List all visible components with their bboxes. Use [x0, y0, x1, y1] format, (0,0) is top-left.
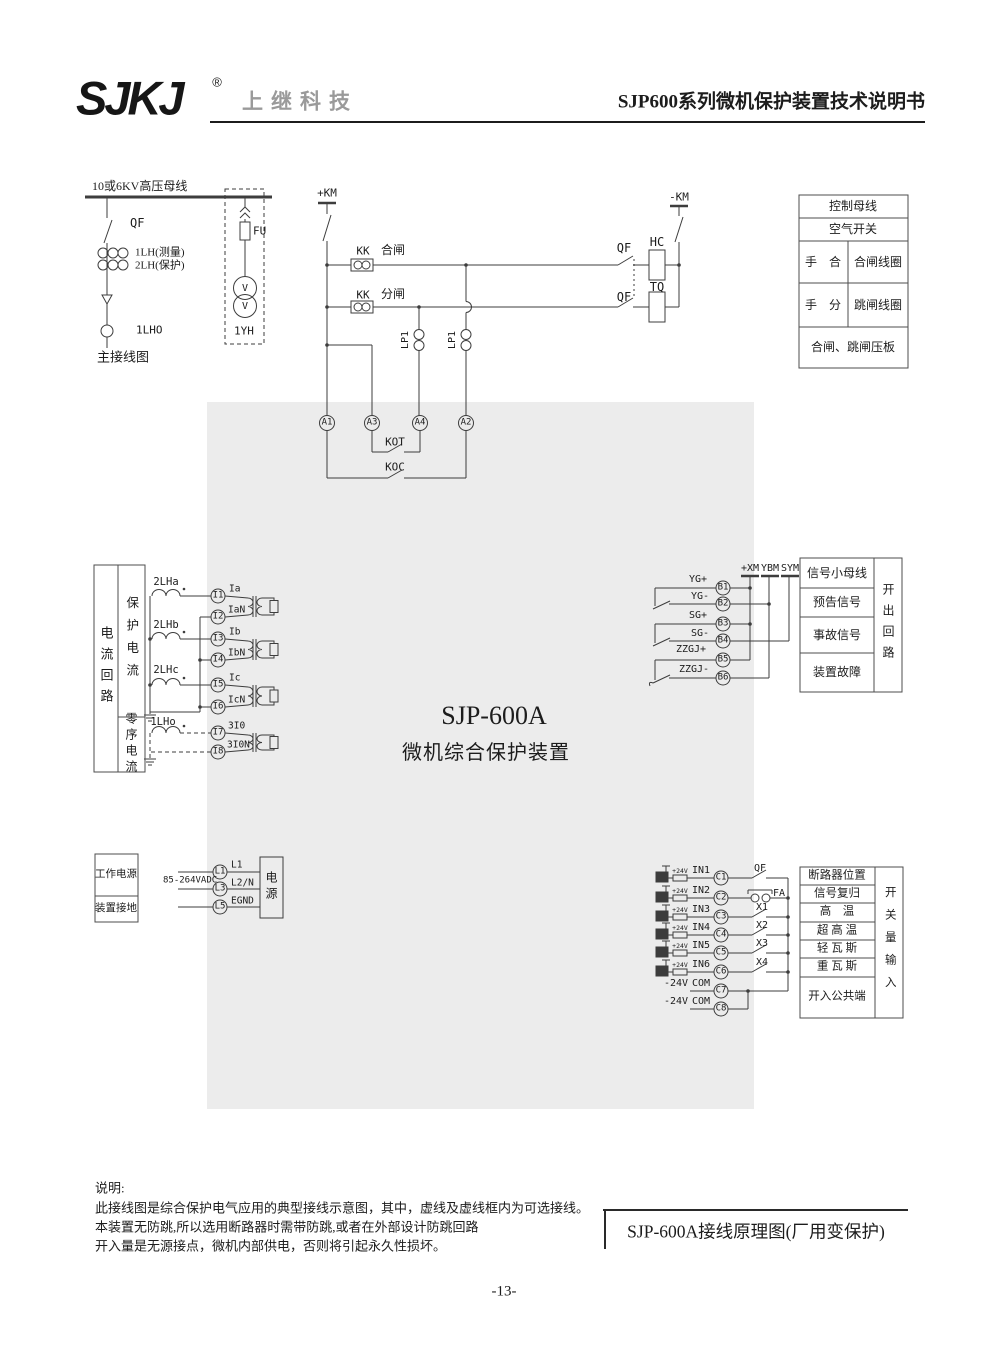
junction-dots: [148, 588, 202, 728]
in-table-row-light-gas: 轻 瓦 斯: [817, 943, 857, 955]
bus-sym-label: SYM: [781, 564, 799, 574]
contact-x2-label: X2: [756, 921, 768, 931]
r24v-label-1: +24V: [672, 868, 688, 875]
signal-l2n: L2/N: [231, 878, 254, 888]
terminal-c1: C1: [716, 874, 727, 883]
terminal-c7: C7: [716, 987, 727, 996]
terminal-b4: B4: [718, 637, 729, 646]
r24v-label-4: +24V: [672, 925, 688, 932]
trip-coil-label: TQ: [650, 281, 664, 293]
device-model: SJP-600A: [441, 703, 546, 729]
terminal-l5: L5: [215, 903, 226, 912]
signal-ibn: IbN: [228, 648, 245, 658]
current-group-label: 电流回路: [100, 626, 113, 710]
ct-b-label: 2LHb: [153, 620, 178, 631]
signal-in4: IN4: [692, 923, 710, 933]
contact-x3-label: X3: [756, 939, 768, 949]
breaker-label: QF: [130, 217, 144, 229]
signal-ia: Ia: [229, 584, 240, 594]
terminal-a2: A2: [461, 419, 472, 428]
terminal-i8: I8: [213, 748, 224, 757]
sig-table-row-fault: 事故信号: [813, 629, 861, 641]
in-table-row-over-temp: 超 高 温: [817, 925, 857, 937]
supply-voltage-label: 85-264VADC: [163, 877, 217, 886]
terminal-i4: I4: [213, 656, 224, 665]
lp1-close-plate-label: LP1: [448, 331, 458, 349]
signal-ic: Ic: [229, 673, 240, 683]
kk-close-label: KK: [356, 246, 369, 257]
terminal-i7: I7: [213, 729, 224, 738]
brand-logo: SJKJ: [76, 75, 182, 122]
r24v-label-3: +24V: [672, 907, 688, 914]
terminal-b6: B6: [718, 674, 729, 683]
close-coil-label: HC: [650, 236, 664, 248]
primary-caption: 主接线图: [97, 351, 149, 364]
manual-page: SJKJ ® 上继科技 SJP600系列微机保护装置技术说明书 10或6KV高压…: [0, 0, 1000, 1357]
km-positive-label: +KM: [317, 188, 337, 199]
vt-v2-label: V: [242, 302, 248, 312]
in-table-row-signal-reset: 信号复归: [814, 888, 860, 900]
r24v-label-6: +24V: [672, 962, 688, 969]
terminal-b5: B5: [718, 656, 729, 665]
ctrl-table-close-coil: 合闸线圈: [854, 256, 902, 268]
terminal-c8: C8: [716, 1005, 727, 1014]
sig-table-col-output: 开出回路: [882, 583, 894, 667]
terminal-c3: C3: [716, 913, 727, 922]
contact-qf-label: QF: [754, 864, 766, 874]
r24v-label-5: +24V: [672, 943, 688, 950]
kot-contact-label: KOT: [385, 437, 405, 448]
notes-title: 说明:: [95, 1182, 125, 1195]
drawing-title: SJP-600A接线原理图(厂用变保护): [627, 1223, 885, 1241]
fuse-label: FU: [253, 226, 266, 237]
bus-ybm-label: YBM: [761, 564, 779, 574]
terminal-b1: B1: [718, 584, 729, 593]
zero-seq-current-label: 零序电流: [125, 712, 137, 776]
terminal-i5: I5: [213, 681, 224, 690]
signal-in2: IN2: [692, 886, 710, 896]
signal-in1: IN1: [692, 866, 710, 876]
signal-com-1: COM: [692, 979, 710, 989]
in-table-row-high-temp: 高 温: [820, 906, 855, 918]
signal-in6: IN6: [692, 960, 710, 970]
signal-zzgj-pos: ZZGJ+: [676, 645, 706, 655]
psu-box-label: 电源: [265, 871, 277, 903]
registered-mark-icon: ®: [212, 76, 222, 89]
neg24v-label-2: -24V: [664, 997, 688, 1007]
notes-line-3: 开入量是无源接点，微机内部供电，否则将引起永久性损坏。: [95, 1240, 446, 1253]
company-name: 上继科技: [242, 92, 358, 113]
terminal-i6: I6: [213, 703, 224, 712]
signal-in3: IN3: [692, 905, 710, 915]
signal-ian: IaN: [228, 605, 245, 615]
ct-a-label: 2LHa: [153, 577, 178, 588]
sig-table-row-device-fail: 装置故障: [813, 666, 861, 678]
bus-xm-label: +XM: [741, 564, 759, 574]
qf-aux2-label: QF: [617, 291, 631, 303]
sig-table-row-bus: 信号小母线: [807, 567, 867, 579]
protect-current-label: 保护电流: [125, 596, 138, 686]
r24v-label-2: +24V: [672, 888, 688, 895]
ctrl-table-plates: 合闸、跳闸压板: [811, 341, 895, 353]
vt-v1-label: V: [242, 284, 248, 294]
hv-bus-label: 10或6KV高压母线: [92, 180, 187, 192]
terminal-l3: L3: [215, 885, 226, 894]
notes-line-1: 此接线图是综合保护电气应用的典型接线示意图，其中，虚线及虚线框内为可选接线。: [95, 1202, 589, 1215]
zero-ct-label: 1LHO: [136, 325, 163, 336]
signal-yg-neg: YG-: [691, 592, 709, 602]
in-table-col-binary-input: 开关量输入: [883, 886, 895, 999]
document-title: SJP600系列微机保护装置技术说明书: [618, 93, 925, 112]
in-table-row-breaker-pos: 断路器位置: [808, 870, 866, 882]
terminal-c4: C4: [716, 931, 727, 940]
terminal-b3: B3: [718, 620, 729, 629]
contact-fa-label: FA: [773, 889, 785, 899]
ctrl-table-row-bus: 控制母线: [829, 200, 877, 212]
signal-3i0: 3I0: [228, 721, 245, 731]
signal-sg-pos: SG+: [689, 611, 707, 621]
terminal-l1: L1: [215, 868, 226, 877]
terminal-i1: I1: [213, 592, 224, 601]
signal-sg-neg: SG-: [691, 629, 709, 639]
power-row-ground: 装置接地: [95, 904, 137, 915]
signal-yg-pos: YG+: [689, 575, 707, 585]
ctrl-table-row-breaker: 空气开关: [829, 223, 877, 235]
signal-ib: Ib: [229, 627, 240, 637]
signal-zzgj-neg: ZZGJ-: [679, 665, 709, 675]
vt-label: 1YH: [234, 326, 254, 337]
contact-x1-label: X1: [756, 903, 768, 913]
contact-x4-label: X4: [756, 958, 768, 968]
lp1-trip-plate-label: LP1: [401, 331, 411, 349]
ct-c-label: 2LHc: [153, 665, 178, 676]
close-label: 合闸: [381, 244, 405, 256]
ct-measure-label: 1LH(测量): [135, 248, 185, 259]
koc-contact-label: KOC: [385, 462, 405, 473]
ctrl-table-manual-close: 手 合: [805, 256, 841, 268]
terminal-i3: I3: [213, 635, 224, 644]
qf-aux1-label: QF: [617, 242, 631, 254]
signal-l1: L1: [231, 860, 242, 870]
signal-egnd: EGND: [231, 896, 254, 906]
terminal-i2: I2: [213, 613, 224, 622]
device-name: 微机综合保护装置: [402, 743, 570, 763]
ctrl-table-trip-coil: 跳闸线圈: [854, 299, 902, 311]
in-table-row-common: 开入公共端: [808, 991, 866, 1003]
signal-3i0n: 3I0N: [227, 740, 250, 750]
notes-line-2: 本装置无防跳,所以选用断路器时需带防跳,或者在外部设计防跳回路: [95, 1221, 479, 1234]
neg24v-label-1: -24V: [664, 979, 688, 989]
terminal-c5: C5: [716, 949, 727, 958]
trip-label: 分闸: [381, 288, 405, 300]
in-table-row-heavy-gas: 重 瓦 斯: [817, 961, 857, 973]
signal-com-2: COM: [692, 997, 710, 1007]
kk-trip-label: KK: [356, 290, 369, 301]
junction-dots: [325, 263, 681, 347]
terminal-c2: C2: [716, 894, 727, 903]
km-negative-label: -KM: [669, 192, 689, 203]
terminal-a1: A1: [322, 419, 333, 428]
power-row-supply: 工作电源: [95, 870, 137, 881]
terminal-a4: A4: [415, 419, 426, 428]
terminal-b2: B2: [718, 600, 729, 609]
terminal-a3: A3: [367, 419, 378, 428]
sig-table-row-warn: 预告信号: [813, 596, 861, 608]
signal-in5: IN5: [692, 941, 710, 951]
ct-protect-label: 2LH(保护): [135, 261, 185, 272]
signal-icn: IcN: [228, 695, 245, 705]
page-number: -13-: [492, 1285, 517, 1300]
terminal-c6: C6: [716, 968, 727, 977]
ct-o-label: 1LHo: [150, 717, 175, 728]
ctrl-table-manual-trip: 手 分: [805, 299, 841, 311]
